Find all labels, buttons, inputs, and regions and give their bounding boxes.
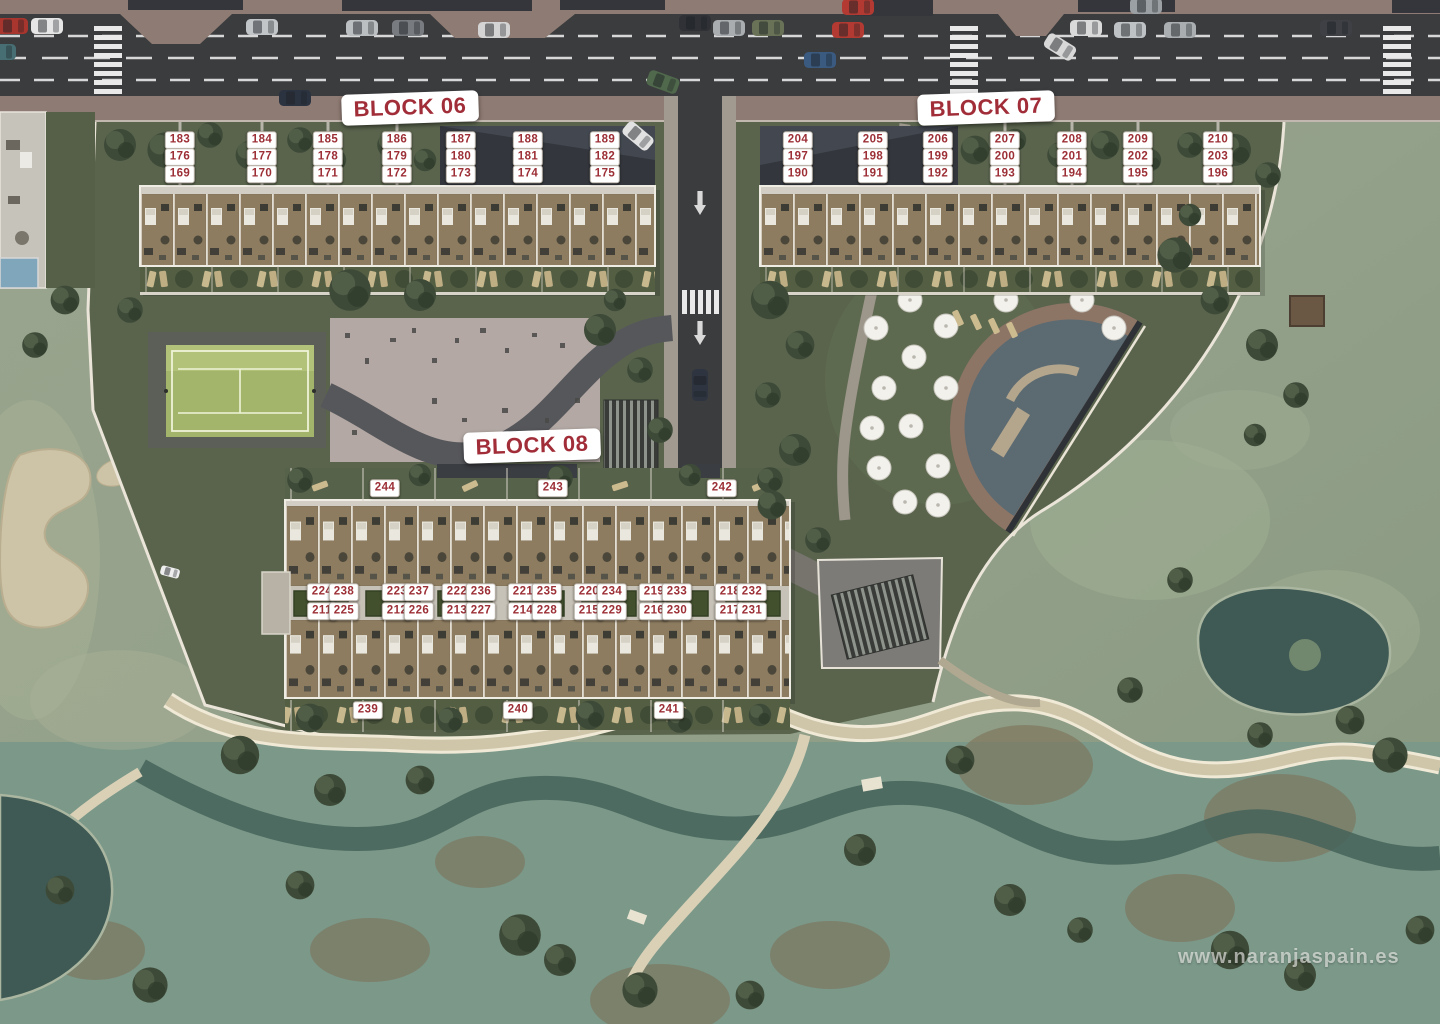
unit-badge-192[interactable]: 192: [923, 165, 953, 183]
unit-badge-196[interactable]: 196: [1203, 165, 1233, 183]
unit-badge-175[interactable]: 175: [590, 165, 620, 183]
unit-badge-180[interactable]: 180: [446, 148, 476, 166]
unit-overlay: BLOCK 0618318418518618718818917617717817…: [0, 0, 1440, 1024]
unit-badge-202[interactable]: 202: [1123, 148, 1153, 166]
unit-badge-239[interactable]: 239: [353, 701, 383, 719]
unit-badge-171[interactable]: 171: [313, 165, 343, 183]
unit-badge-177[interactable]: 177: [247, 148, 277, 166]
unit-badge-193[interactable]: 193: [990, 165, 1020, 183]
unit-badge-185[interactable]: 185: [313, 131, 343, 149]
unit-badge-207[interactable]: 207: [990, 131, 1020, 149]
unit-badge-194[interactable]: 194: [1057, 165, 1087, 183]
unit-badge-184[interactable]: 184: [247, 131, 277, 149]
unit-badge-170[interactable]: 170: [247, 165, 277, 183]
unit-badge-237[interactable]: 237: [404, 583, 434, 601]
unit-badge-186[interactable]: 186: [382, 131, 412, 149]
unit-badge-179[interactable]: 179: [382, 148, 412, 166]
unit-badge-244[interactable]: 244: [370, 479, 400, 497]
unit-badge-234[interactable]: 234: [597, 583, 627, 601]
unit-badge-238[interactable]: 238: [329, 583, 359, 601]
unit-badge-241[interactable]: 241: [654, 701, 684, 719]
unit-badge-172[interactable]: 172: [382, 165, 412, 183]
unit-badge-236[interactable]: 236: [466, 583, 496, 601]
unit-badge-169[interactable]: 169: [165, 165, 195, 183]
block-label-block-07: BLOCK 07: [917, 90, 1055, 126]
unit-badge-208[interactable]: 208: [1057, 131, 1087, 149]
unit-badge-173[interactable]: 173: [446, 165, 476, 183]
unit-badge-209[interactable]: 209: [1123, 131, 1153, 149]
unit-badge-201[interactable]: 201: [1057, 148, 1087, 166]
unit-badge-204[interactable]: 204: [783, 131, 813, 149]
unit-badge-197[interactable]: 197: [783, 148, 813, 166]
unit-badge-195[interactable]: 195: [1123, 165, 1153, 183]
unit-badge-188[interactable]: 188: [513, 131, 543, 149]
unit-badge-229[interactable]: 229: [597, 602, 627, 620]
unit-badge-189[interactable]: 189: [590, 131, 620, 149]
unit-badge-243[interactable]: 243: [538, 479, 568, 497]
unit-badge-205[interactable]: 205: [858, 131, 888, 149]
unit-badge-227[interactable]: 227: [466, 602, 496, 620]
unit-badge-182[interactable]: 182: [590, 148, 620, 166]
unit-badge-190[interactable]: 190: [783, 165, 813, 183]
unit-badge-176[interactable]: 176: [165, 148, 195, 166]
unit-badge-230[interactable]: 230: [662, 602, 692, 620]
unit-badge-199[interactable]: 199: [923, 148, 953, 166]
unit-badge-198[interactable]: 198: [858, 148, 888, 166]
unit-badge-181[interactable]: 181: [513, 148, 543, 166]
unit-badge-231[interactable]: 231: [737, 602, 767, 620]
unit-badge-226[interactable]: 226: [404, 602, 434, 620]
unit-badge-242[interactable]: 242: [707, 479, 737, 497]
unit-badge-178[interactable]: 178: [313, 148, 343, 166]
unit-badge-225[interactable]: 225: [329, 602, 359, 620]
unit-badge-232[interactable]: 232: [737, 583, 767, 601]
unit-badge-240[interactable]: 240: [503, 701, 533, 719]
unit-badge-174[interactable]: 174: [513, 165, 543, 183]
unit-badge-233[interactable]: 233: [662, 583, 692, 601]
unit-badge-200[interactable]: 200: [990, 148, 1020, 166]
unit-badge-206[interactable]: 206: [923, 131, 953, 149]
unit-badge-203[interactable]: 203: [1203, 148, 1233, 166]
unit-badge-210[interactable]: 210: [1203, 131, 1233, 149]
unit-badge-228[interactable]: 228: [532, 602, 562, 620]
unit-badge-187[interactable]: 187: [446, 131, 476, 149]
site-plan: BLOCK 0618318418518618718818917617717817…: [0, 0, 1440, 1024]
block-label-block-08: BLOCK 08: [463, 428, 601, 464]
block-label-block-06: BLOCK 06: [341, 90, 479, 126]
unit-badge-191[interactable]: 191: [858, 165, 888, 183]
unit-badge-235[interactable]: 235: [532, 583, 562, 601]
watermark: www.naranjaspain.es: [1178, 946, 1400, 969]
unit-badge-183[interactable]: 183: [165, 131, 195, 149]
